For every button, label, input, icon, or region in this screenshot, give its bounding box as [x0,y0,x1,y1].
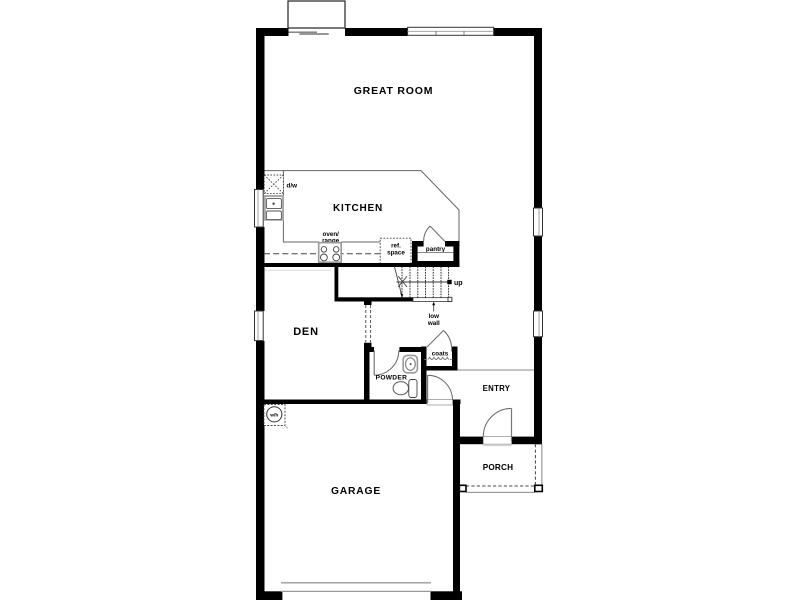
svg-text:d/w: d/w [287,183,298,190]
svg-text:ENTRY: ENTRY [483,384,511,393]
svg-text:GARAGE: GARAGE [331,486,381,497]
svg-text:DEN: DEN [293,326,319,338]
svg-text:KITCHEN: KITCHEN [333,203,383,214]
svg-text:POWDER: POWDER [376,375,407,382]
svg-text:space: space [387,249,405,256]
svg-text:w/h: w/h [269,412,278,418]
svg-text:pantry: pantry [426,246,446,253]
svg-text:coats: coats [432,351,449,358]
svg-text:wall: wall [427,320,440,327]
svg-text:PORCH: PORCH [483,463,514,472]
svg-text:GREAT ROOM: GREAT ROOM [354,85,434,97]
svg-text:up: up [454,280,463,287]
